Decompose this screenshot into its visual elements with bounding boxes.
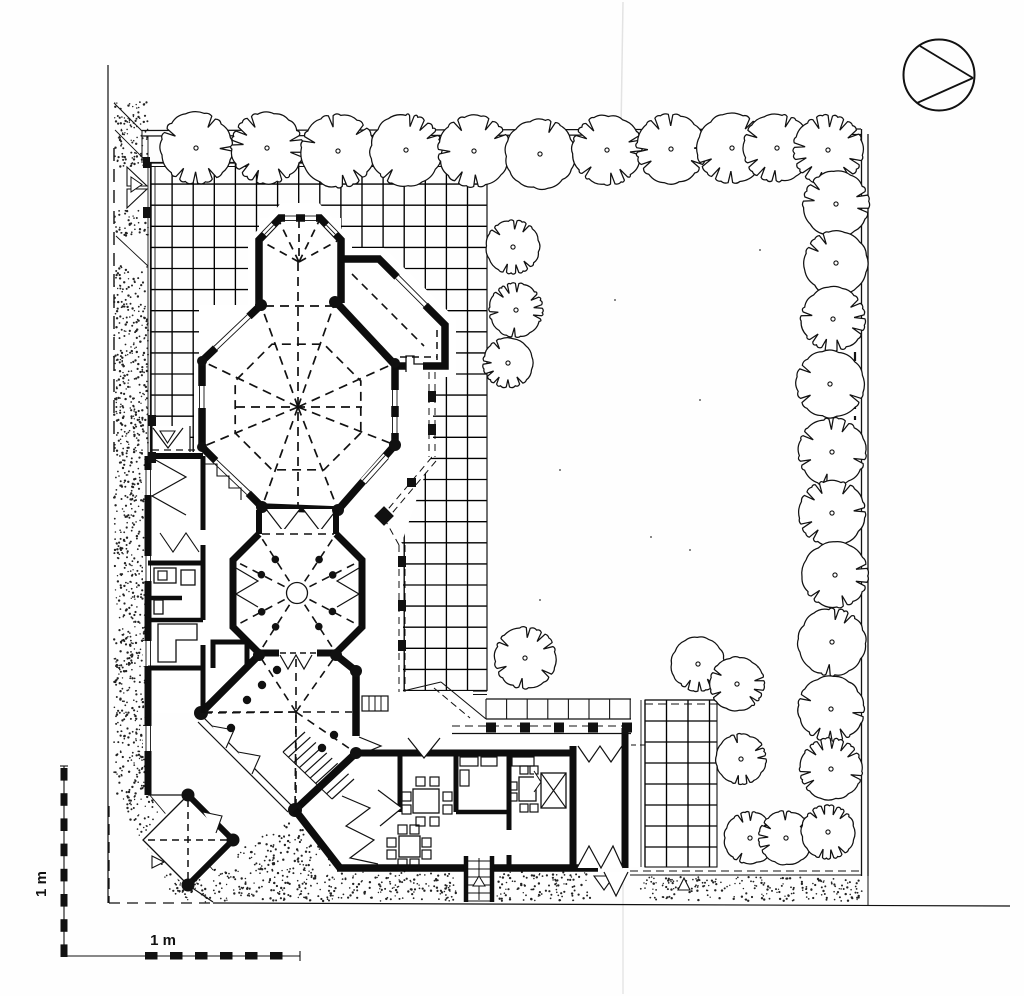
svg-text:1 m: 1 m — [150, 932, 176, 949]
svg-text:1 m: 1 m — [33, 871, 50, 897]
